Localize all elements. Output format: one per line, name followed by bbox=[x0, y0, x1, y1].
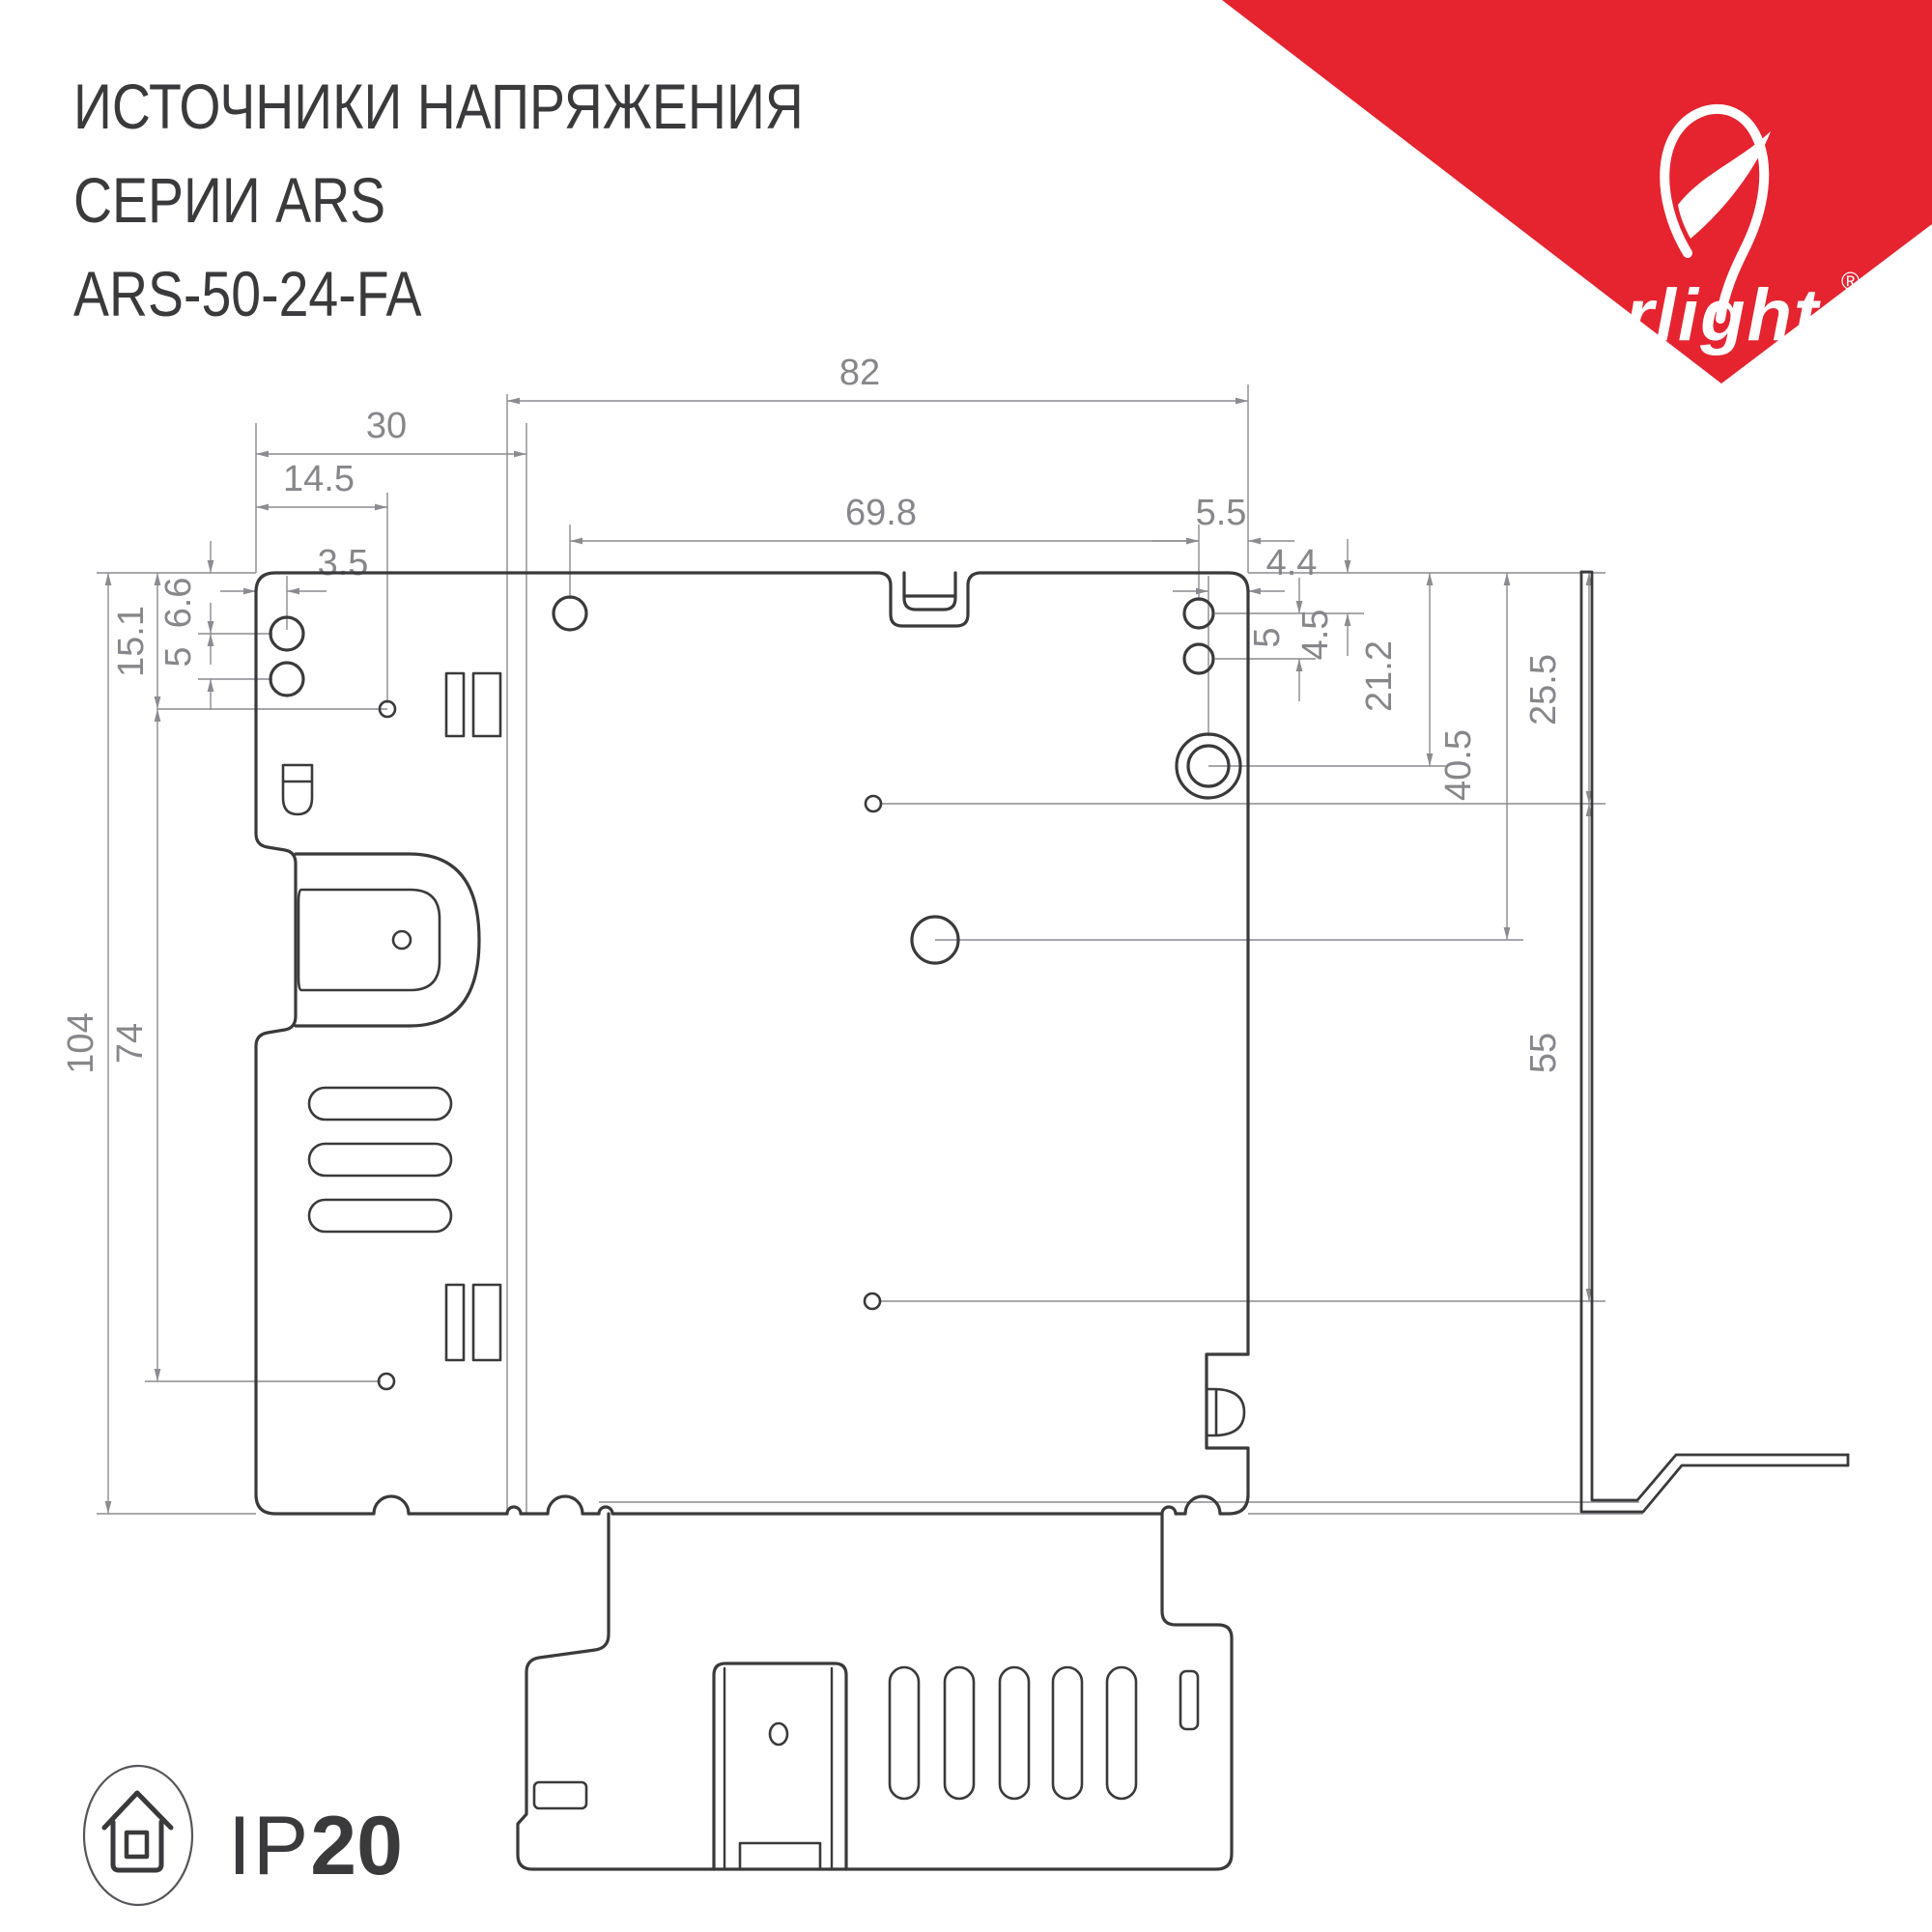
dim-30: 30 bbox=[366, 406, 407, 446]
dim-40-5: 40.5 bbox=[1438, 729, 1479, 801]
brand-logo-text: arlight bbox=[1582, 274, 1821, 356]
hole bbox=[866, 796, 881, 811]
dim-4-4: 4.4 bbox=[1266, 543, 1318, 583]
hole bbox=[865, 1293, 880, 1309]
page: ИСТОЧНИКИ НАПРЯЖЕНИЯ СЕРИИ ARS ARS-50-24… bbox=[0, 0, 1932, 1932]
dim-5-left: 5 bbox=[158, 646, 199, 667]
dim-82: 82 bbox=[839, 353, 880, 393]
dim-3-5: 3.5 bbox=[318, 543, 369, 583]
dim-5-5: 5.5 bbox=[1196, 493, 1247, 533]
front-view bbox=[256, 573, 1248, 1514]
front-outline bbox=[256, 573, 1248, 1514]
dim-6-6: 6.6 bbox=[158, 578, 199, 629]
side-view bbox=[1581, 572, 1848, 1512]
dim-21-2: 21.2 bbox=[1359, 640, 1400, 712]
dim-74: 74 bbox=[110, 1023, 151, 1064]
hole bbox=[270, 663, 303, 696]
dim-15-1: 15.1 bbox=[111, 606, 152, 677]
dim-104: 104 bbox=[61, 1012, 101, 1073]
brand-logo: arlight ® bbox=[1582, 109, 1860, 356]
dim-25-5: 25.5 bbox=[1523, 654, 1564, 725]
hole bbox=[379, 1374, 394, 1389]
registered-mark: ® bbox=[1841, 267, 1860, 296]
hole bbox=[554, 597, 586, 630]
dimension-labels: 82 30 14.5 3.5 69.8 5.5 4.4 15.1 6.6 5 1… bbox=[61, 353, 1564, 1074]
dim-69-8: 69.8 bbox=[845, 493, 917, 533]
house-in-circle-icon bbox=[84, 1766, 192, 1905]
dim-55: 55 bbox=[1523, 1033, 1564, 1073]
bottom-view bbox=[518, 1514, 1232, 1869]
dim-4-5: 4.5 bbox=[1295, 610, 1336, 661]
dimension-drawing: 82 30 14.5 3.5 69.8 5.5 4.4 15.1 6.6 5 1… bbox=[0, 0, 1932, 1932]
dim-14-5: 14.5 bbox=[283, 459, 355, 499]
dim-5-right: 5 bbox=[1247, 627, 1288, 647]
